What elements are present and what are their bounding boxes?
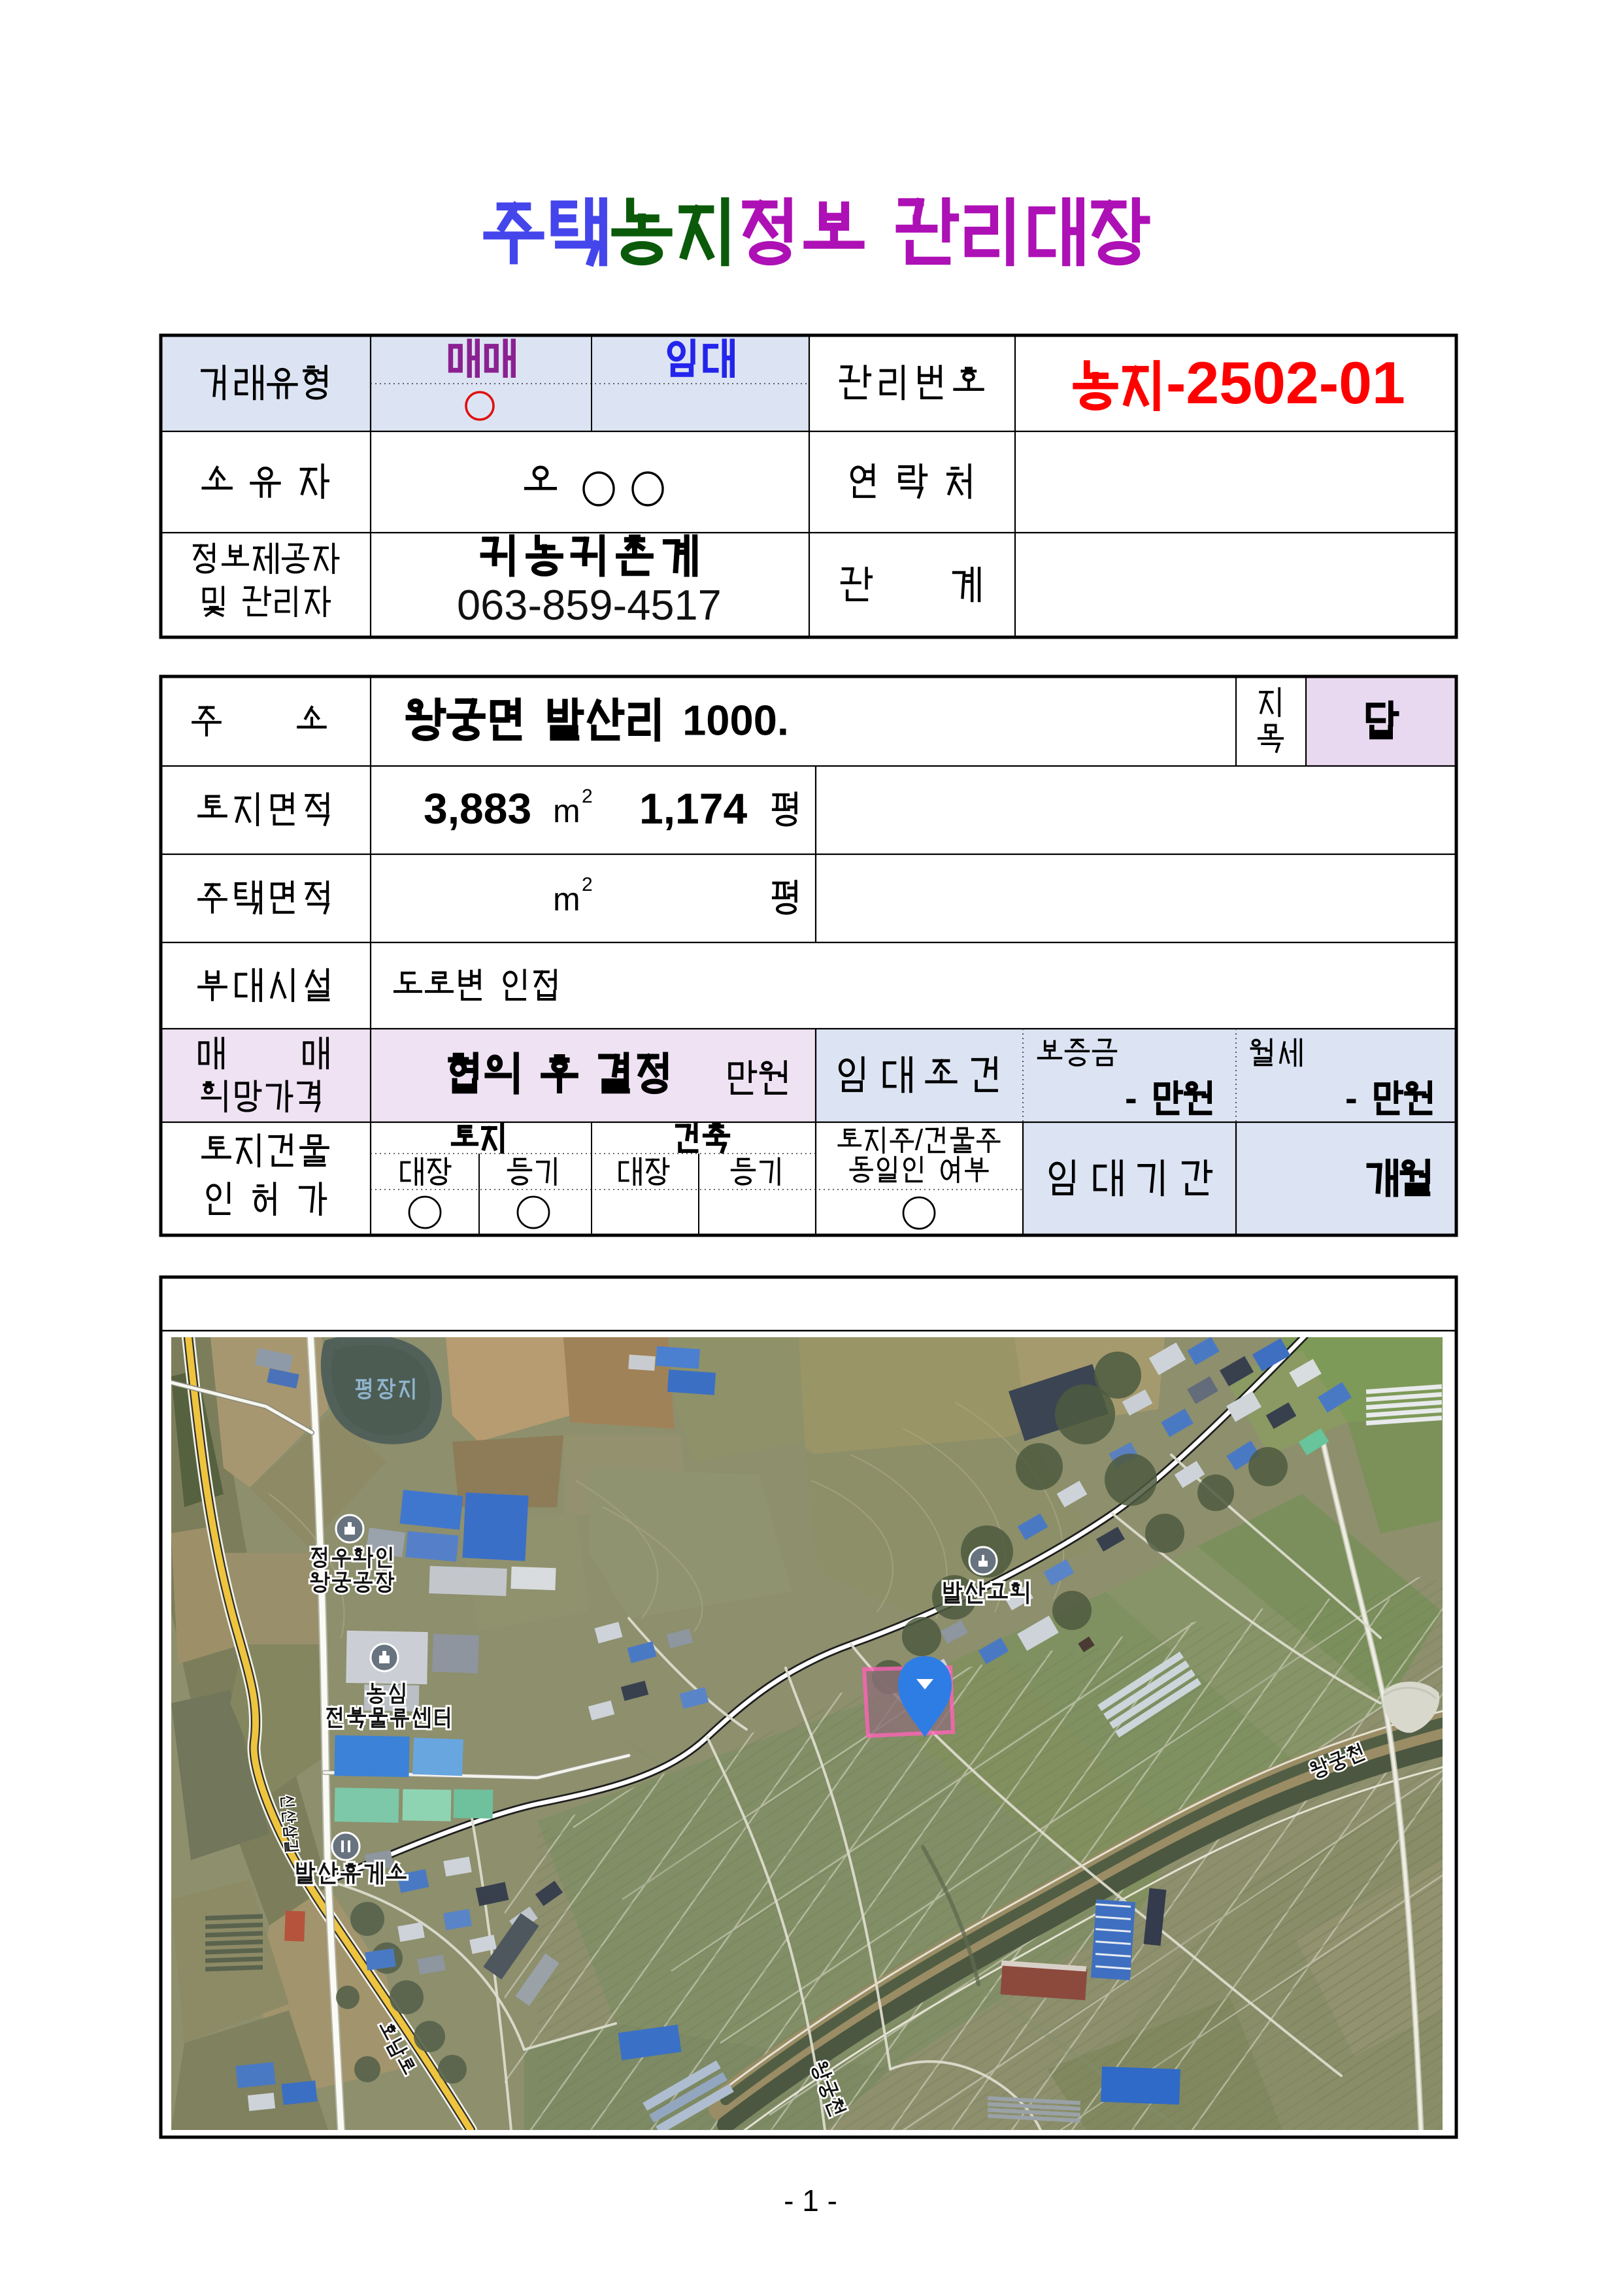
svg-text:-: - <box>1125 1077 1137 1118</box>
svg-text:2: 2 <box>582 874 593 895</box>
svg-text:- 1 -: - 1 - <box>784 2184 837 2218</box>
svg-text:1,174: 1,174 <box>639 784 747 833</box>
svg-text:2: 2 <box>582 786 593 807</box>
svg-text:-2502-01: -2502-01 <box>1166 350 1405 416</box>
svg-text:m: m <box>553 793 580 829</box>
svg-text:3,883: 3,883 <box>424 784 531 833</box>
svg-text:1000.: 1000. <box>682 696 789 744</box>
svg-text:/: / <box>915 1123 924 1156</box>
svg-text:m: m <box>553 881 580 918</box>
svg-text:-: - <box>1345 1077 1358 1118</box>
svg-text:063-859-4517: 063-859-4517 <box>457 581 722 629</box>
